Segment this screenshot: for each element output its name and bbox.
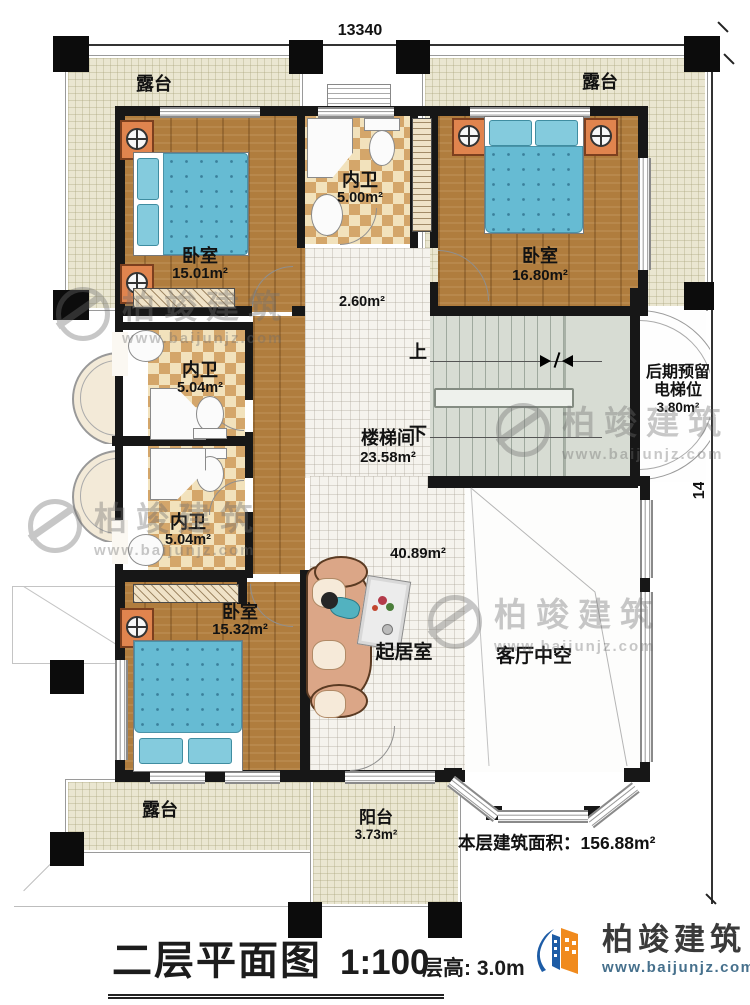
- watermark: 柏竣建筑 www.baijunjz.com: [428, 588, 662, 655]
- room-label-bath-top: 内卫: [328, 170, 392, 190]
- column: [684, 36, 720, 72]
- watermark-url: www.baijunjz.com: [94, 542, 262, 559]
- floor-area-note: 本层建筑面积：156.88m²: [458, 830, 655, 855]
- watermark-url: www.baijunjz.com: [122, 330, 290, 347]
- lamp-icon: [458, 125, 480, 147]
- balcony-door-band: [345, 771, 435, 784]
- pillow: [137, 204, 159, 246]
- wardrobe: [412, 118, 432, 232]
- watermark-name: 柏竣建筑: [94, 492, 262, 540]
- stair-guide-up: [430, 361, 602, 362]
- watermark: 柏竣建筑 www.baijunjz.com: [28, 492, 262, 559]
- brand-logo: 柏竣建筑 www.baijunjz.com: [528, 920, 750, 980]
- flower-icon: [386, 603, 394, 611]
- watermark-url: www.baijunjz.com: [562, 446, 730, 463]
- sofa-cushion: [314, 690, 346, 718]
- dim-tick: [723, 53, 734, 64]
- dim-top-label: 13340: [320, 22, 400, 40]
- floor-plan: 13340 14940: [0, 0, 750, 1005]
- column: [684, 282, 714, 310]
- room-label-terrace-tl: 露台: [126, 74, 182, 94]
- pillow: [137, 158, 159, 200]
- wardrobe: [133, 584, 239, 603]
- bed-quilt: [134, 641, 242, 733]
- room-area-balcony: 3.73m²: [348, 827, 404, 842]
- pillow: [535, 120, 578, 146]
- person-head: [321, 592, 338, 609]
- window: [318, 107, 394, 118]
- terrace-bottom: [68, 782, 313, 850]
- bowl-icon: [382, 624, 393, 635]
- room-area-bath-mid: 5.04m²: [166, 380, 234, 396]
- watermark-logo-icon: [496, 403, 550, 457]
- page-title: 二层平面图: [112, 928, 322, 986]
- sofa-cushion: [312, 640, 346, 670]
- window: [115, 660, 128, 760]
- wall: [115, 570, 247, 582]
- brand-website: www.baijunjz.com: [602, 959, 750, 976]
- floor-area-value: 156.88m²: [581, 833, 656, 853]
- dim-line-right: [711, 52, 713, 904]
- bed-quilt: [163, 153, 248, 255]
- stair-up: 上: [406, 342, 430, 362]
- wall: [430, 306, 648, 316]
- lamp-icon: [590, 125, 612, 147]
- pillow: [139, 738, 183, 764]
- dim-tick: [717, 21, 728, 32]
- room-label-bedroom-tr: 卧室: [506, 246, 574, 266]
- dim-line-top: [65, 44, 700, 46]
- brand-name: 柏竣建筑: [602, 924, 750, 955]
- flower-icon: [372, 605, 378, 611]
- lamp-icon: [126, 128, 148, 150]
- watermark-logo-icon: [28, 499, 82, 553]
- pillow: [489, 120, 532, 146]
- bed-quilt: [485, 146, 583, 233]
- room-area-bedroom-b: 15.32m²: [200, 622, 280, 639]
- watermark-name: 柏竣建筑: [562, 396, 730, 444]
- watermark-logo-icon: [56, 287, 110, 341]
- brand-logo-icon: [528, 920, 592, 980]
- room-label-terrace-b: 露台: [132, 800, 188, 820]
- pillow: [188, 738, 232, 764]
- watermark-url: www.baijunjz.com: [494, 638, 662, 655]
- toilet-icon: [369, 130, 395, 166]
- balcony-floor: [313, 782, 458, 904]
- stair-down: 下: [406, 424, 430, 444]
- wall: [297, 106, 305, 248]
- window: [225, 771, 280, 784]
- column: [50, 660, 84, 694]
- drawing-scale: 1:100: [340, 943, 430, 983]
- wall: [245, 432, 253, 478]
- stair-arrow: [540, 355, 551, 367]
- toilet-tank: [193, 428, 227, 439]
- floor-height: 层高: 3.0m: [422, 952, 525, 982]
- column: [50, 832, 84, 866]
- hall-area: 2.60m²: [322, 294, 402, 310]
- title-block: 二层平面图 1:100: [108, 928, 444, 999]
- room-area-stairwell: 23.58m²: [346, 450, 430, 467]
- room-label-elevator-1: 后期预留: [626, 364, 730, 382]
- window: [150, 771, 205, 784]
- lamp-icon: [126, 616, 148, 638]
- room-area-living: 40.89m²: [376, 546, 460, 563]
- bay-window-wrap: [70, 350, 118, 444]
- bay-window-band: [498, 810, 588, 823]
- window: [640, 500, 653, 578]
- watermark: 柏竣建筑 www.baijunjz.com: [496, 396, 730, 463]
- room-label-bedroom-b: 卧室: [206, 602, 274, 622]
- roof-left: [12, 586, 120, 664]
- column: [53, 36, 89, 72]
- column: [396, 40, 430, 74]
- watermark-name: 柏竣建筑: [122, 280, 290, 328]
- watermark: 柏竣建筑 www.baijunjz.com: [56, 280, 290, 347]
- nightstand: [584, 118, 618, 156]
- room-area-bath-top: 5.00m²: [326, 190, 394, 206]
- wall: [430, 282, 438, 306]
- flower-icon: [378, 596, 387, 605]
- stair-arrow: [562, 355, 573, 367]
- wall: [292, 306, 305, 316]
- roof-bottom-eave: [14, 906, 300, 907]
- column: [289, 40, 323, 74]
- watermark-logo-icon: [428, 595, 482, 649]
- room-label-bath-mid: 内卫: [168, 360, 232, 380]
- room-label-terrace-tr: 露台: [572, 72, 628, 92]
- room-area-bedroom-tr: 16.80m²: [502, 268, 578, 285]
- room-label-balcony: 阳台: [350, 808, 402, 827]
- window: [638, 158, 651, 270]
- toilet-icon: [196, 396, 224, 432]
- nightstand: [452, 118, 486, 156]
- window: [160, 107, 260, 118]
- watermark-name: 柏竣建筑: [494, 588, 662, 636]
- room-label-bedroom-tl: 卧室: [166, 246, 234, 266]
- floor-area-label: 本层建筑面积：: [458, 833, 581, 853]
